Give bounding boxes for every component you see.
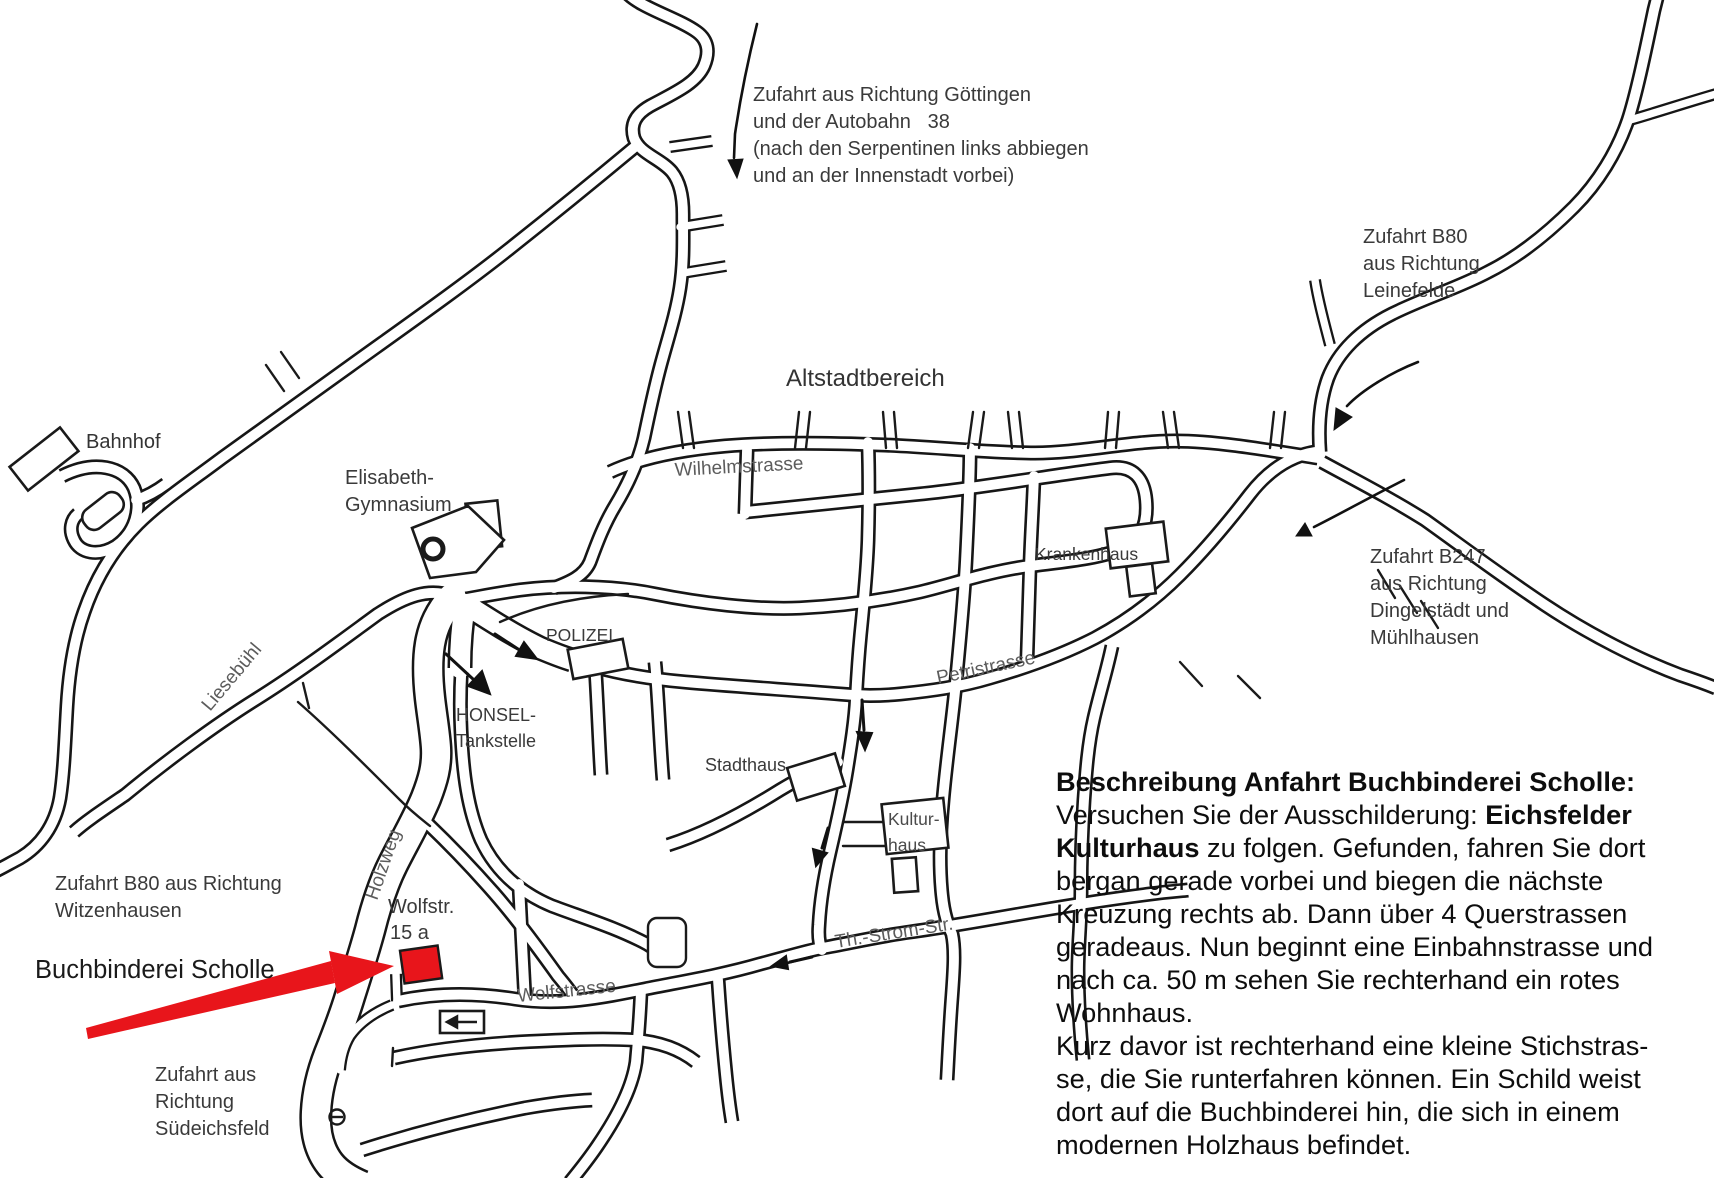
svg-text:Gymnasium: Gymnasium — [345, 494, 452, 516]
svg-text:Kreuzung rechts ab. Dann über: Kreuzung rechts ab. Dann über 4 Querstra… — [1056, 898, 1627, 929]
svg-text:Wolfstr.: Wolfstr. — [388, 896, 454, 918]
svg-text:Zufahrt aus: Zufahrt aus — [155, 1064, 256, 1086]
svg-text:und der Autobahn 38: und der Autobahn 38 — [753, 111, 950, 133]
svg-text:Südeichsfeld: Südeichsfeld — [155, 1118, 270, 1140]
svg-text:Kurz davor ist rechterhand ein: Kurz davor ist rechterhand eine kleine S… — [1056, 1030, 1648, 1061]
svg-text:nach ca. 50 m sehen Sie rechte: nach ca. 50 m sehen Sie rechterhand ein … — [1056, 964, 1620, 995]
svg-text:haus: haus — [888, 835, 926, 855]
svg-text:aus Richtung: aus Richtung — [1370, 573, 1487, 595]
svg-text:Leinefelde: Leinefelde — [1363, 280, 1455, 302]
svg-text:se, die Sie runterfahren könne: se, die Sie runterfahren können. Ein Sch… — [1056, 1063, 1641, 1094]
svg-text:Mühlhausen: Mühlhausen — [1370, 627, 1479, 649]
svg-text:dort auf die Buchbinderei hin,: dort auf die Buchbinderei hin, die sich … — [1056, 1096, 1620, 1127]
svg-text:Zufahrt B80: Zufahrt B80 — [1363, 226, 1468, 248]
svg-text:geradeaus. Nun beginnt eine Ei: geradeaus. Nun beginnt eine Einbahnstras… — [1056, 931, 1653, 962]
svg-text:Bahnhof: Bahnhof — [86, 431, 161, 453]
svg-text:Krankenhaus: Krankenhaus — [1035, 544, 1138, 564]
svg-text:HONSEL-: HONSEL- — [456, 705, 536, 725]
svg-text:Dingelstädt und: Dingelstädt und — [1370, 600, 1509, 622]
svg-text:Beschreibung Anfahrt Buchbinde: Beschreibung Anfahrt Buchbinderei Scholl… — [1056, 766, 1635, 797]
svg-text:(nach den Serpentinen links ab: (nach den Serpentinen links abbiegen — [753, 138, 1089, 160]
svg-text:Stadthaus: Stadthaus — [705, 755, 786, 775]
svg-text:Zufahrt B80 aus Richtung: Zufahrt B80 aus Richtung — [55, 873, 282, 895]
svg-text:modernen Holzhaus befindet.: modernen Holzhaus befindet. — [1056, 1129, 1411, 1160]
svg-text:Zufahrt B247: Zufahrt B247 — [1370, 546, 1486, 568]
svg-text:Versuchen Sie der Ausschilderu: Versuchen Sie der Ausschilderung: Eichsf… — [1056, 799, 1632, 830]
svg-text:POLIZEI: POLIZEI — [546, 625, 613, 645]
svg-text:Wohnhaus.: Wohnhaus. — [1056, 997, 1193, 1028]
svg-text:Tankstelle: Tankstelle — [456, 731, 536, 751]
svg-text:15 a: 15 a — [390, 922, 430, 944]
svg-text:Richtung: Richtung — [155, 1091, 234, 1113]
svg-text:Kulturhaus zu folgen. Gefunden: Kulturhaus zu folgen. Gefunden, fahren S… — [1056, 832, 1646, 863]
svg-text:und an der Innenstadt vorbei): und an der Innenstadt vorbei) — [753, 165, 1014, 187]
svg-text:Kultur-: Kultur- — [888, 809, 940, 829]
svg-text:Zufahrt aus Richtung Göttingen: Zufahrt aus Richtung Göttingen — [753, 84, 1031, 106]
svg-text:Witzenhausen: Witzenhausen — [55, 900, 182, 922]
svg-text:Buchbinderei Scholle: Buchbinderei Scholle — [35, 956, 275, 984]
svg-text:aus Richtung: aus Richtung — [1363, 253, 1480, 275]
svg-text:Elisabeth-: Elisabeth- — [345, 467, 434, 489]
svg-text:bergan gerade vorbei und biege: bergan gerade vorbei und biegen die näch… — [1056, 865, 1603, 896]
svg-text:Altstadtbereich: Altstadtbereich — [786, 365, 945, 392]
